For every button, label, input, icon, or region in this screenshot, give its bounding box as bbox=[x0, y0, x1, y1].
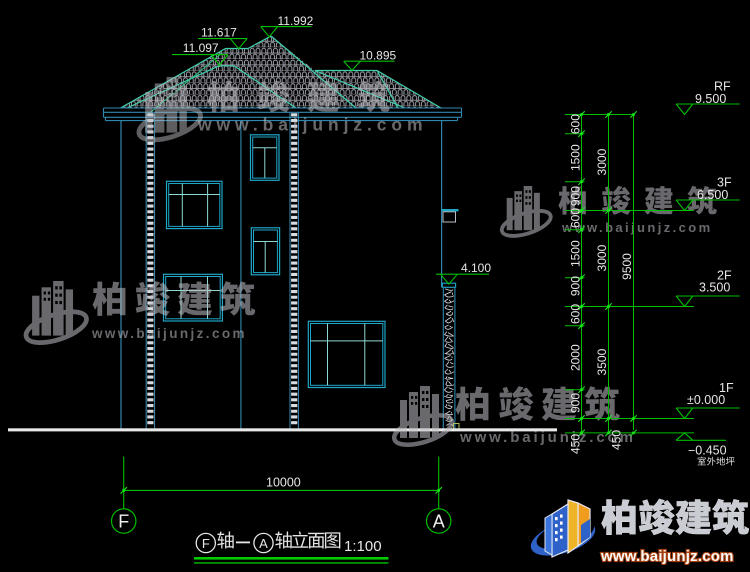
svg-text:www.baijunjz.com: www.baijunjz.com bbox=[91, 326, 247, 341]
svg-text:±0.000: ±0.000 bbox=[687, 393, 725, 407]
svg-text:900: 900 bbox=[568, 276, 582, 296]
svg-text:3500: 3500 bbox=[595, 348, 609, 375]
svg-text:11.617: 11.617 bbox=[201, 26, 237, 40]
svg-text:450: 450 bbox=[568, 434, 582, 454]
svg-text:450: 450 bbox=[610, 430, 624, 450]
svg-text:4.100: 4.100 bbox=[461, 261, 491, 275]
svg-text:600: 600 bbox=[568, 114, 582, 134]
svg-text:600: 600 bbox=[568, 304, 582, 324]
svg-text:www.baijunjz.com: www.baijunjz.com bbox=[600, 548, 734, 565]
svg-text:−0.450: −0.450 bbox=[688, 444, 727, 458]
svg-text:11.097: 11.097 bbox=[183, 41, 219, 55]
svg-text:10000: 10000 bbox=[266, 476, 301, 490]
svg-text:900: 900 bbox=[568, 186, 582, 206]
svg-text:900: 900 bbox=[568, 393, 582, 413]
svg-text:9.500: 9.500 bbox=[695, 92, 726, 106]
svg-text:9500: 9500 bbox=[620, 253, 634, 280]
svg-text:10.895: 10.895 bbox=[360, 48, 397, 62]
svg-text:3000: 3000 bbox=[595, 244, 609, 271]
svg-text:600: 600 bbox=[568, 208, 582, 228]
svg-text:1:100: 1:100 bbox=[344, 538, 382, 555]
svg-text:www.baijunjz.com: www.baijunjz.com bbox=[197, 115, 427, 135]
svg-text:11.992: 11.992 bbox=[278, 14, 314, 28]
svg-text:2000: 2000 bbox=[568, 344, 582, 371]
svg-text:A: A bbox=[433, 512, 445, 532]
svg-text:F: F bbox=[202, 536, 210, 551]
svg-text:1500: 1500 bbox=[568, 240, 582, 267]
svg-text:3.500: 3.500 bbox=[699, 281, 730, 295]
svg-text:6.500: 6.500 bbox=[697, 188, 728, 202]
svg-text:A: A bbox=[259, 536, 268, 551]
svg-text:F: F bbox=[118, 512, 129, 532]
svg-text:3000: 3000 bbox=[595, 148, 609, 175]
svg-text:1500: 1500 bbox=[568, 144, 582, 171]
